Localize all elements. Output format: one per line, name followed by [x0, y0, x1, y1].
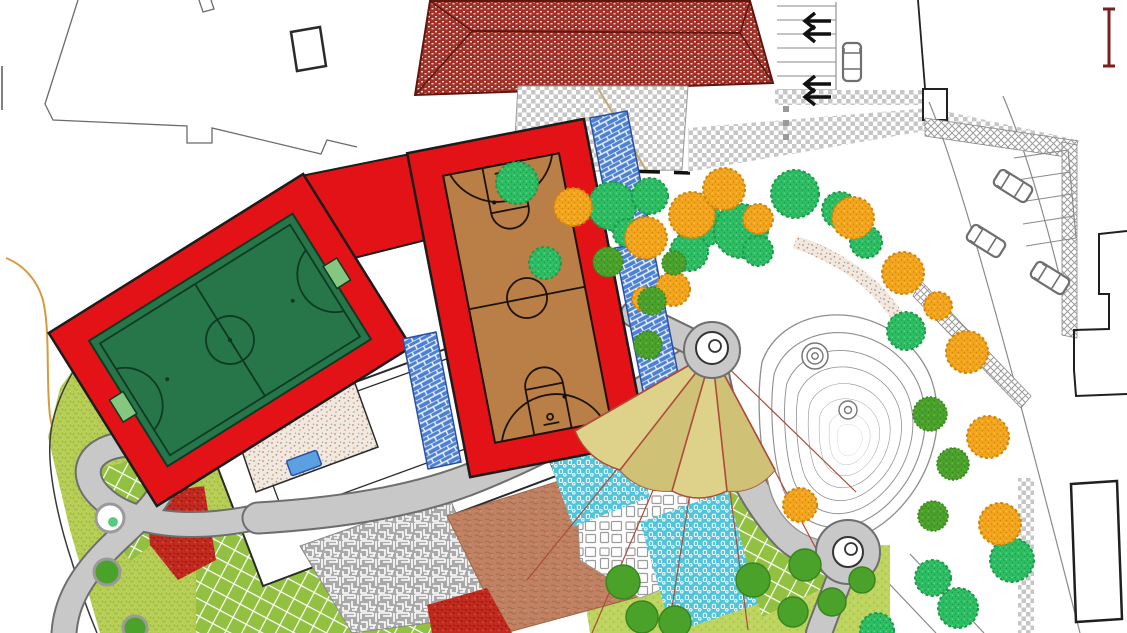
tree-icon [783, 488, 817, 522]
tree-icon [979, 503, 1021, 545]
tree-icon [887, 312, 925, 350]
tree-icon [938, 588, 978, 628]
tree-icon [593, 247, 623, 277]
mound-ring [802, 343, 828, 369]
tree-icon [634, 331, 662, 359]
site-plan-svg [0, 0, 1127, 633]
tree-icon [736, 563, 770, 597]
tree-icon [632, 178, 668, 214]
bollard-icon [783, 134, 789, 140]
tree-icon [918, 501, 948, 531]
trees-white [96, 504, 124, 532]
tree-icon [818, 588, 846, 616]
tree-icon [924, 292, 952, 320]
tree-icon [94, 559, 120, 585]
tree-icon [659, 606, 691, 633]
tree-icon [606, 565, 640, 599]
tree-icon [937, 448, 969, 480]
building-roof [415, 1, 773, 95]
parking-checker-strip [775, 90, 925, 105]
path-node-a [684, 322, 740, 378]
tree-icon [626, 601, 658, 633]
bollard-icon [783, 120, 789, 126]
tree-icon [967, 416, 1009, 458]
building-southeast [1071, 481, 1122, 622]
tree-icon [778, 597, 808, 627]
tree-icon [638, 287, 666, 315]
site-plan [0, 0, 1127, 633]
tree-white-icon [96, 504, 124, 532]
tree-icon [625, 217, 667, 259]
small-building-outline [291, 27, 326, 71]
mound-ring [839, 401, 857, 419]
tree-icon [662, 251, 686, 275]
tree-icon [554, 188, 592, 226]
tree-icon [529, 247, 561, 279]
tree-icon [849, 567, 875, 593]
tree-white-center [108, 517, 118, 527]
tree-icon [789, 549, 821, 581]
car-icon [843, 43, 861, 81]
tree-icon [123, 616, 147, 633]
tree-icon [882, 252, 924, 294]
tree-icon [703, 168, 745, 210]
tree-icon [743, 236, 773, 266]
tree-icon [743, 204, 773, 234]
tree-icon [946, 331, 988, 373]
tree-icon [915, 560, 951, 596]
bollard-icon [783, 106, 789, 112]
tree-icon [832, 197, 874, 239]
tree-icon [771, 170, 819, 218]
tree-icon [913, 397, 947, 431]
tree-icon [496, 162, 538, 204]
